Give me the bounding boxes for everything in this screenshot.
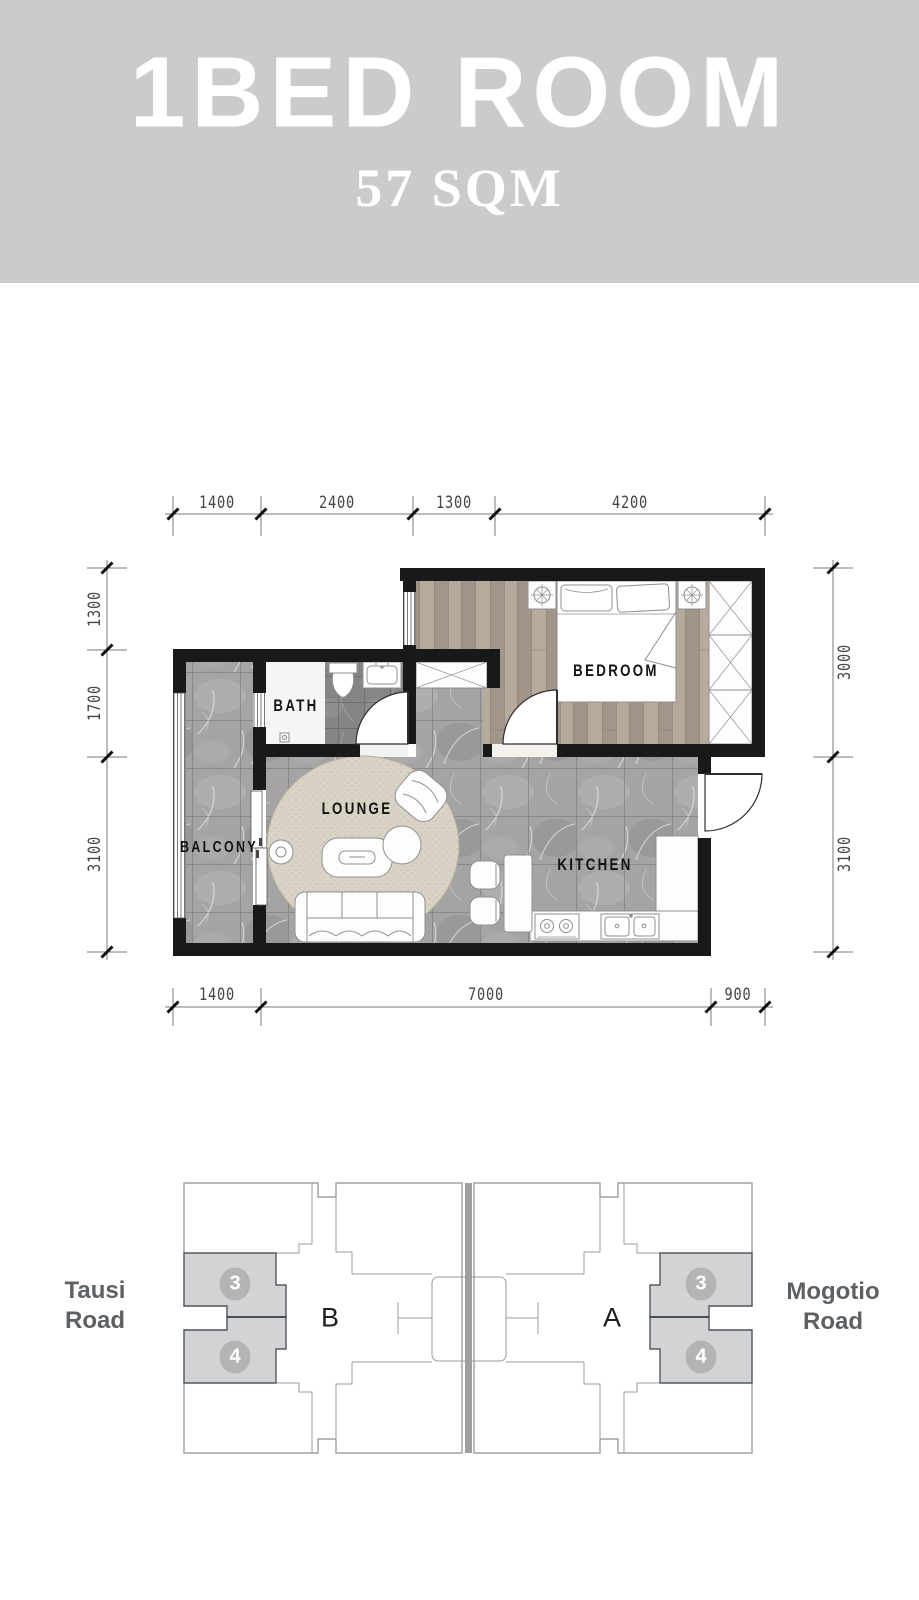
- dim-bottom-3: 900: [725, 985, 752, 1005]
- bath-sink: [363, 662, 401, 688]
- dim-right-2: 3100: [835, 836, 855, 872]
- dim-left-3: 3100: [85, 836, 105, 872]
- coffee-table: [322, 838, 392, 877]
- nightstand: [678, 581, 706, 609]
- dim-top-1: 1400: [199, 493, 235, 513]
- room-label-lounge: LOUNGE: [322, 799, 393, 819]
- kitchen-counter-right: [656, 836, 698, 911]
- road-label-left: Tausi Road: [50, 1276, 140, 1336]
- dim-top-2: 2400: [319, 493, 355, 513]
- side-table: [269, 840, 293, 864]
- dim-left-2: 1700: [85, 685, 105, 721]
- unit-badge-3-right: 3: [686, 1268, 717, 1301]
- bath-window: [254, 693, 266, 727]
- floor-plan-graphic: [0, 0, 919, 1600]
- block-label-b: B: [321, 1303, 339, 1334]
- dim-right-1: 3000: [835, 644, 855, 680]
- nightstand: [528, 581, 556, 609]
- entry-door: [705, 774, 762, 831]
- room-label-bath: BATH: [273, 696, 318, 716]
- dim-top-3: 1300: [436, 493, 472, 513]
- unit-badge-4-left: 4: [220, 1341, 251, 1374]
- bed: [557, 581, 676, 702]
- room-label-bedroom: BEDROOM: [573, 661, 659, 681]
- room-label-kitchen: KITCHEN: [557, 855, 632, 875]
- balcony-floor: [186, 662, 253, 943]
- dining-table: [504, 855, 532, 932]
- road-label-right: Mogotio Road: [778, 1277, 888, 1337]
- room-label-balcony: BALCONY: [180, 839, 258, 857]
- pouf: [383, 826, 421, 864]
- page: 1BED ROOM 57 SQM: [0, 0, 919, 1600]
- sofa: [295, 892, 425, 942]
- hall-nook-floor: [416, 688, 483, 757]
- dim-bottom-1: 1400: [199, 985, 235, 1005]
- stove: [535, 914, 579, 939]
- dim-top-4: 4200: [612, 493, 648, 513]
- balcony-window: [174, 693, 186, 918]
- site-plan: [184, 1183, 752, 1453]
- dim-left-1: 1300: [85, 591, 105, 627]
- wardrobe: [709, 581, 752, 744]
- unit-badge-3-left: 3: [220, 1268, 251, 1301]
- dim-bottom-2: 7000: [468, 985, 504, 1005]
- bedroom-window: [404, 592, 416, 645]
- hall-closet: [416, 662, 487, 688]
- site-divider: [465, 1183, 472, 1453]
- unit-badge-4-right: 4: [686, 1341, 717, 1374]
- block-label-a: A: [603, 1303, 621, 1334]
- kitchen-sink: [601, 914, 659, 939]
